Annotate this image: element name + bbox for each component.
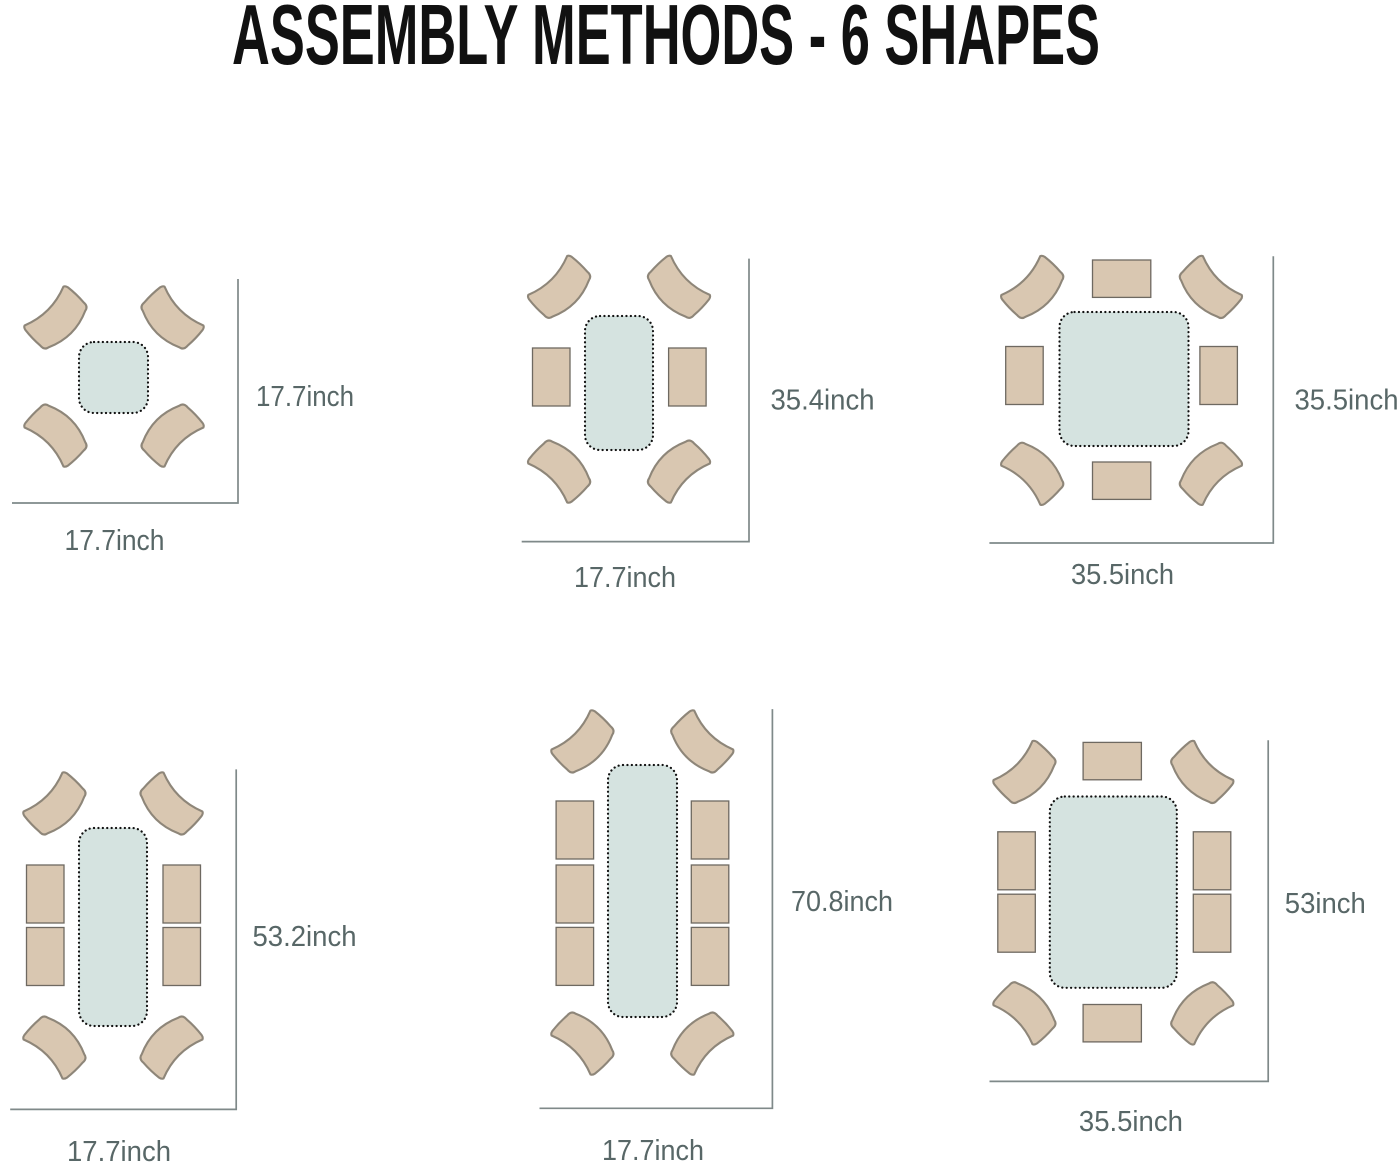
svg-text:35.5inch: 35.5inch	[1295, 385, 1399, 417]
svg-text:35.5inch: 35.5inch	[1079, 1106, 1183, 1138]
svg-text:70.8inch: 70.8inch	[791, 886, 893, 918]
svg-text:17.7inch: 17.7inch	[602, 1135, 704, 1164]
svg-text:ASSEMBLY METHODS - 6 SHAPES: ASSEMBLY METHODS - 6 SHAPES	[232, 0, 1100, 83]
svg-text:35.5inch: 35.5inch	[1071, 559, 1174, 591]
svg-text:35.4inch: 35.4inch	[771, 385, 875, 417]
svg-text:17.7inch: 17.7inch	[574, 562, 676, 594]
svg-text:53inch: 53inch	[1285, 888, 1366, 920]
svg-text:17.7inch: 17.7inch	[67, 1136, 171, 1164]
svg-text:17.7inch: 17.7inch	[256, 381, 354, 413]
svg-text:17.7inch: 17.7inch	[65, 525, 165, 557]
svg-text:53.2inch: 53.2inch	[253, 921, 357, 953]
